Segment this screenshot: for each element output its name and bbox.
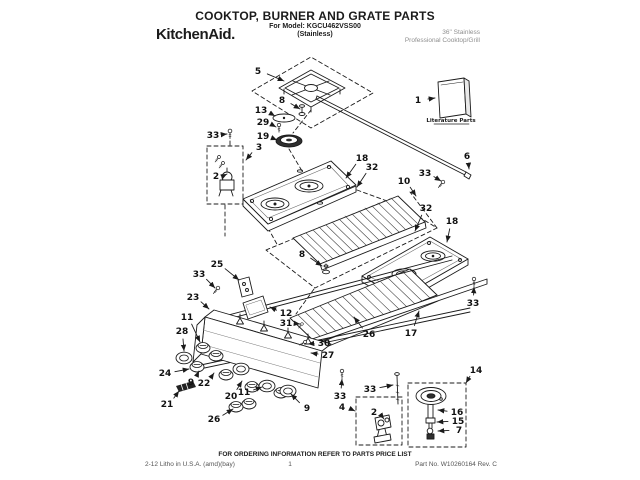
callout-label-3: 3 xyxy=(256,143,262,153)
callout-label-18: 18 xyxy=(446,217,459,227)
callout-label-20: 20 xyxy=(225,392,238,402)
callout-leader-15 xyxy=(437,421,448,422)
callout-leader-25 xyxy=(225,269,239,280)
callout-leader-33 xyxy=(341,379,342,388)
callout-leader-24 xyxy=(175,369,189,372)
callout-leader-1 xyxy=(428,98,435,99)
callout-label-12: 12 xyxy=(280,309,293,319)
callout-label-31: 31 xyxy=(280,319,293,329)
callout-label-8: 8 xyxy=(299,250,305,260)
callout-label-33: 33 xyxy=(193,270,206,280)
callout-label-10: 10 xyxy=(398,177,411,187)
exploded-parts-diagram: Literature Parts xyxy=(0,0,640,480)
callout-label-8: 8 xyxy=(279,96,285,106)
callout-label-4: 4 xyxy=(339,403,345,413)
callout-leader-33 xyxy=(434,177,441,181)
igniter-switch xyxy=(238,277,253,297)
callout-label-6: 6 xyxy=(464,152,470,162)
callout-label-1: 1 xyxy=(415,96,421,106)
surface-burner-stack xyxy=(273,105,305,147)
callout-leader-14 xyxy=(466,376,470,383)
callout-label-27: 27 xyxy=(322,351,335,361)
callout-leader-18 xyxy=(346,164,356,178)
callout-leader-33 xyxy=(380,385,393,388)
callout-leader-13 xyxy=(270,113,275,116)
callout-leader-33 xyxy=(207,279,216,288)
callout-leader-26 xyxy=(223,409,233,415)
ordering-note: FOR ORDERING INFORMATION REFER TO PARTS … xyxy=(130,451,500,458)
parts-catalog-page: COOKTOP, BURNER AND GRATE PARTS For Mode… xyxy=(0,0,640,480)
callout-leader-32 xyxy=(357,173,366,187)
callout-label-33: 33 xyxy=(207,131,220,141)
callout-label-22: 22 xyxy=(198,379,211,389)
callout-label-13: 13 xyxy=(255,106,268,116)
callout-label-28: 28 xyxy=(176,327,189,337)
callout-label-24: 24 xyxy=(159,369,172,379)
callout-label-32: 32 xyxy=(420,204,433,214)
callout-leader-5 xyxy=(267,74,284,81)
callout-label-11: 11 xyxy=(238,388,251,398)
literature-parts-label: Literature Parts xyxy=(426,118,476,124)
callout-leader-10 xyxy=(410,187,416,196)
callout-leader-29 xyxy=(272,125,276,127)
callout-label-29: 29 xyxy=(257,118,270,128)
callout-label-26: 26 xyxy=(208,415,221,425)
callout-leader-7 xyxy=(438,430,449,431)
callout-label-17: 17 xyxy=(405,329,418,339)
callout-leader-21 xyxy=(174,391,179,398)
callout-label-5: 5 xyxy=(255,67,261,77)
callout-label-33: 33 xyxy=(419,169,432,179)
callout-label-26: 26 xyxy=(363,330,376,340)
callout-leader-30 xyxy=(308,344,314,345)
callout-label-9: 9 xyxy=(188,378,194,388)
callout-label-7: 7 xyxy=(456,426,462,436)
callout-leader-8 xyxy=(291,104,300,109)
callout-label-2: 2 xyxy=(213,172,219,182)
callout-leader-16 xyxy=(438,410,447,411)
callout-label-23: 23 xyxy=(187,293,200,303)
callout-label-32: 32 xyxy=(366,163,379,173)
callout-leader-28 xyxy=(183,339,184,351)
callout-label-11: 11 xyxy=(181,313,194,323)
callout-label-19: 19 xyxy=(257,132,270,142)
callout-leader-4 xyxy=(352,409,355,411)
callout-label-21: 21 xyxy=(161,400,174,410)
callout-label-33: 33 xyxy=(334,392,347,402)
callout-leader-9 xyxy=(291,394,300,403)
callout-label-14: 14 xyxy=(470,366,483,376)
callout-leader-22 xyxy=(211,373,214,377)
bracket-plate xyxy=(243,296,268,319)
callout-leader-18 xyxy=(447,229,450,242)
callout-label-30: 30 xyxy=(318,339,331,349)
callout-label-33: 33 xyxy=(467,299,480,309)
gas-valve-assembly-bottom xyxy=(356,373,402,445)
callout-label-9: 9 xyxy=(304,404,310,414)
callout-leader-6 xyxy=(469,164,470,169)
callout-leader-23 xyxy=(201,302,209,309)
callout-leader-3 xyxy=(246,153,252,160)
callout-leader-2 xyxy=(226,174,227,175)
part-number-revision: Part No. W10260164 Rev. C xyxy=(370,461,497,468)
callout-label-33: 33 xyxy=(364,385,377,395)
callout-label-2: 2 xyxy=(371,408,377,418)
callout-label-25: 25 xyxy=(211,260,224,270)
